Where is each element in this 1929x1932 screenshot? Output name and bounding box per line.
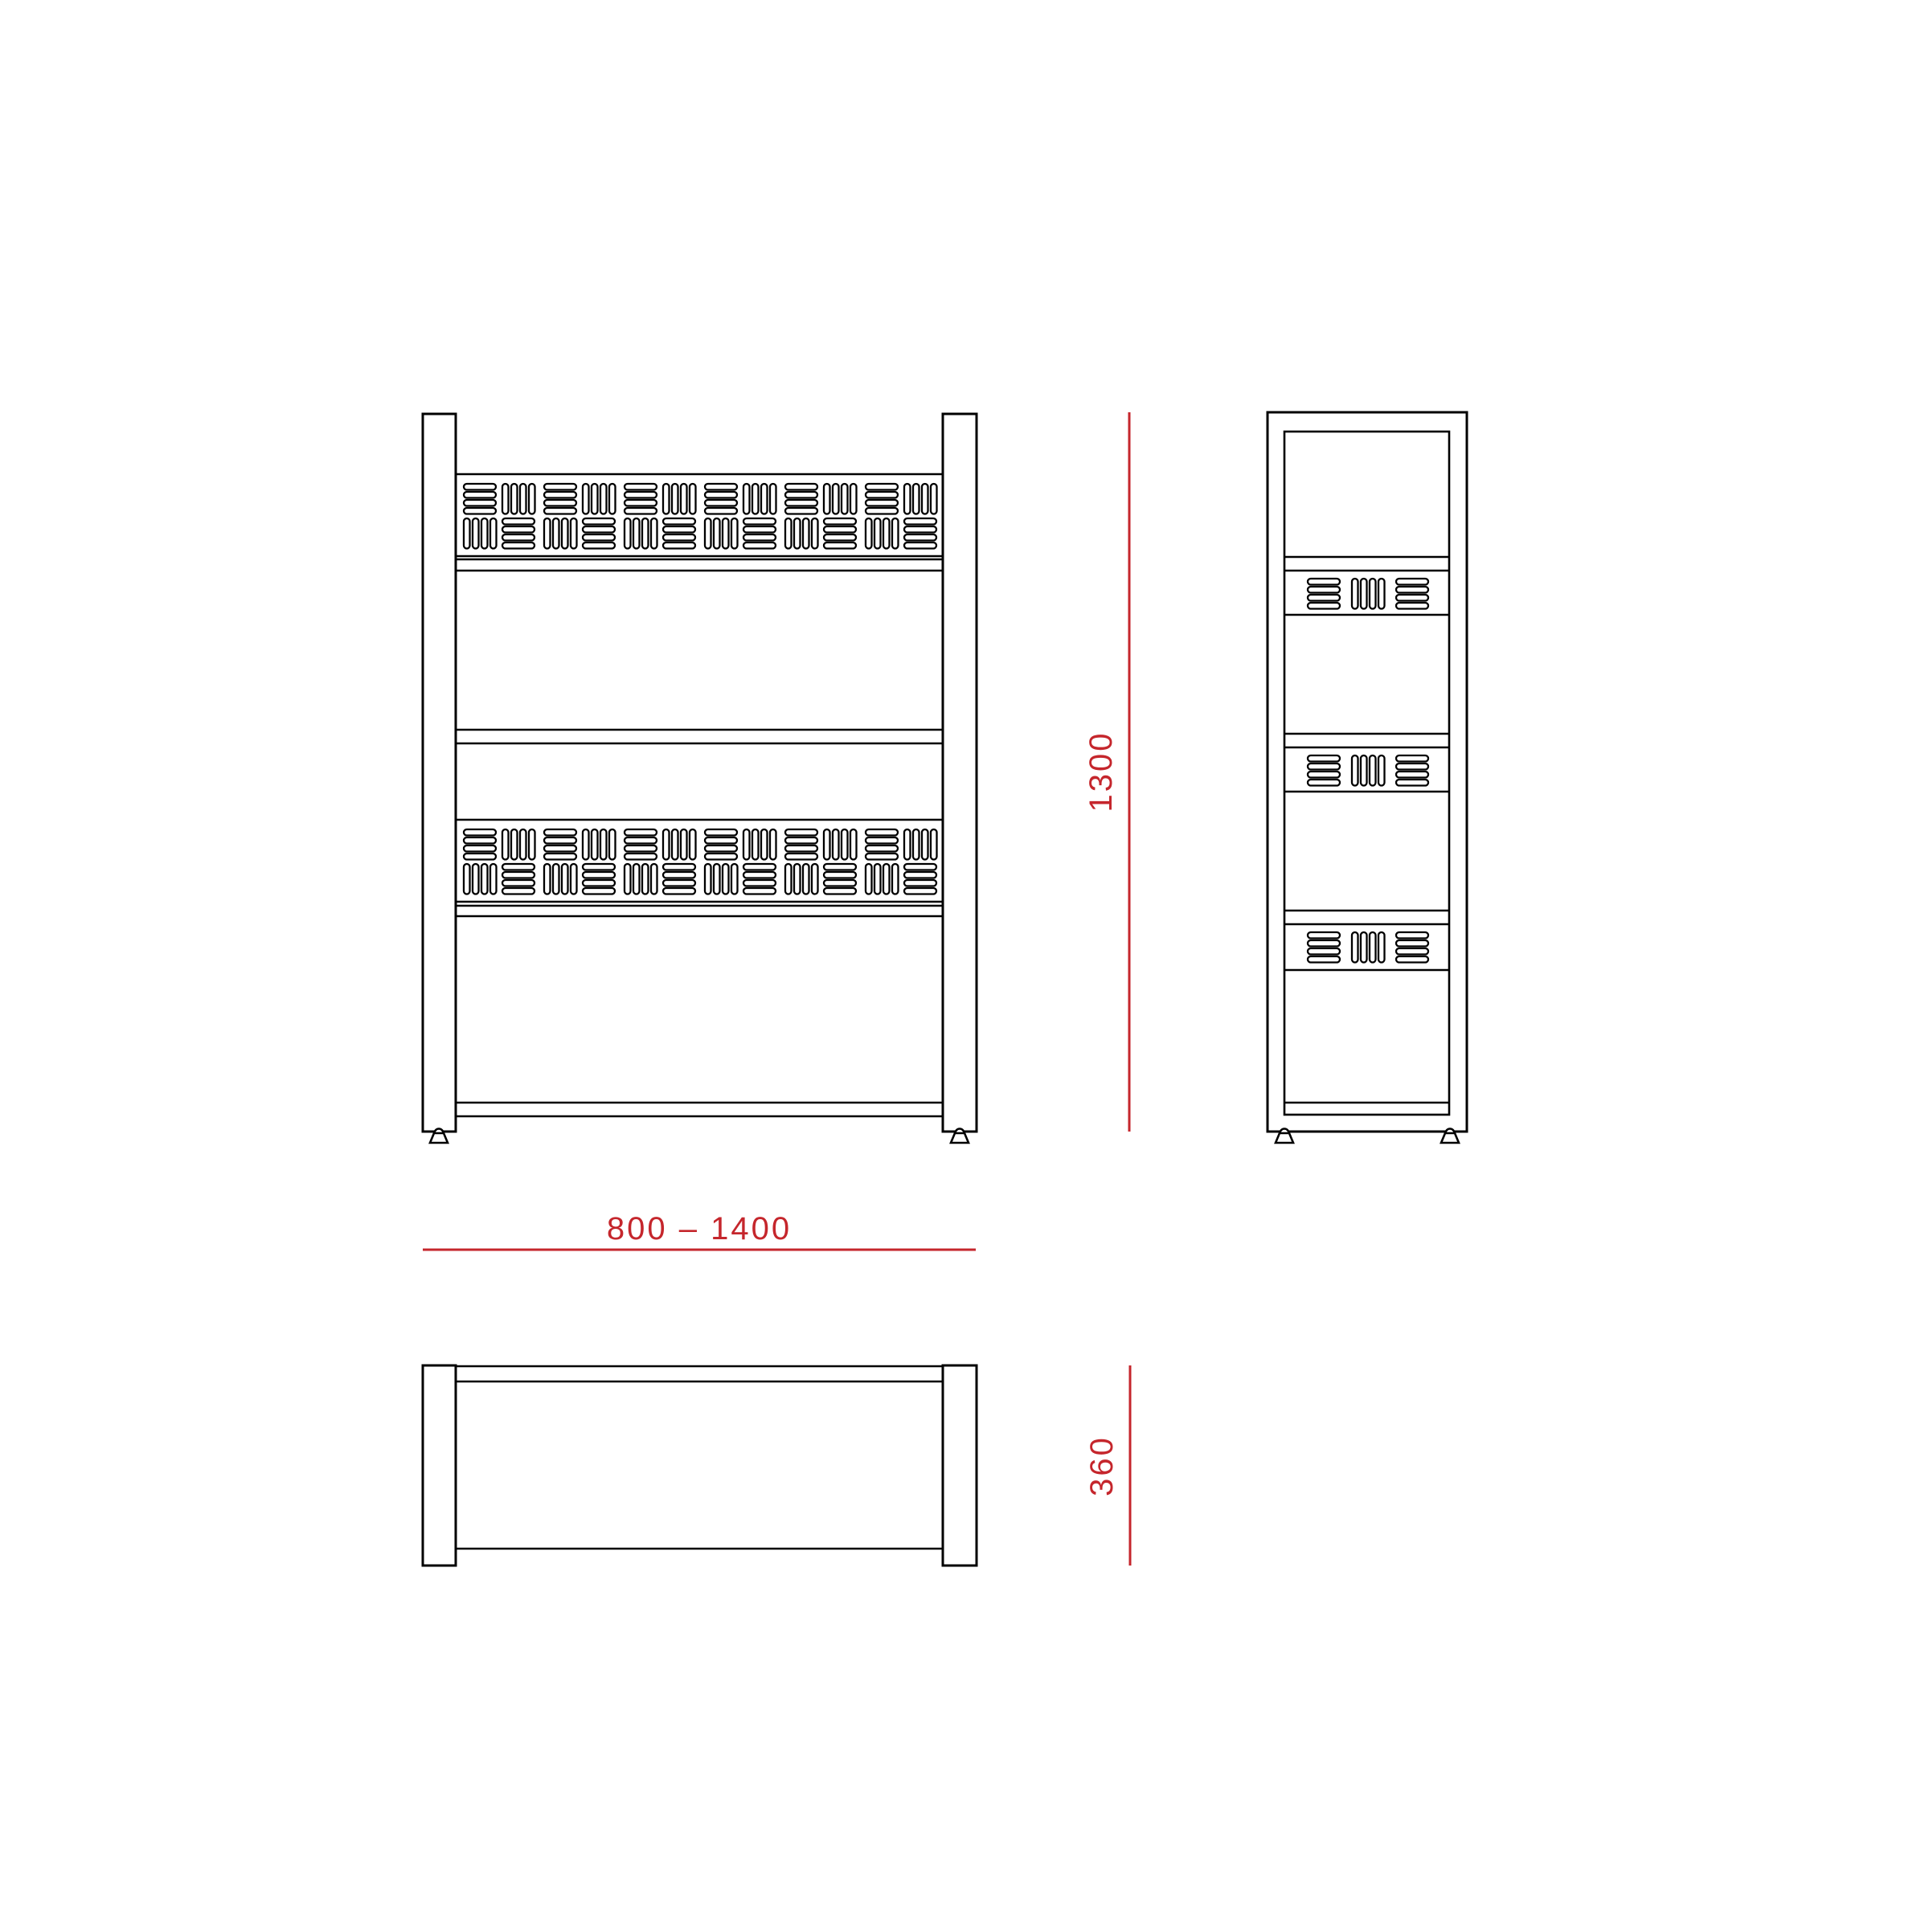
front-right-post — [943, 414, 977, 1132]
vent-slot — [892, 864, 899, 894]
side-view — [1268, 412, 1467, 1143]
vent-slot — [464, 853, 496, 860]
vent-slot — [464, 492, 496, 498]
vent-slot — [464, 829, 496, 836]
vent-slot — [1308, 772, 1340, 778]
vent-slot — [1308, 940, 1340, 947]
vent-slot — [681, 829, 687, 860]
vent-tile-vertical-icon — [502, 829, 535, 860]
vent-slot — [1396, 932, 1428, 939]
vent-slot — [511, 829, 518, 860]
vent-tile-vertical-icon — [502, 484, 535, 514]
vent-slot — [714, 518, 720, 549]
vent-slot — [544, 864, 551, 894]
vent-slot — [544, 518, 551, 549]
foot-glide-base — [430, 1133, 448, 1143]
vent-slot — [663, 534, 695, 541]
vent-slot — [883, 864, 890, 894]
vent-slot — [743, 542, 776, 549]
vent-slot — [464, 500, 496, 506]
vent-slot — [705, 500, 737, 506]
vent-slot — [785, 508, 817, 514]
vent-slot — [812, 864, 818, 894]
vent-slot — [743, 864, 776, 870]
vent-slot — [1396, 755, 1428, 762]
vent-slot — [583, 518, 615, 525]
vent-slot — [904, 829, 911, 860]
vent-slot — [529, 829, 535, 860]
vent-slot — [464, 837, 496, 844]
vent-slot — [904, 484, 911, 514]
vent-slot — [481, 864, 488, 894]
vent-slot — [785, 837, 817, 844]
vent-slot — [464, 518, 470, 549]
vent-slot — [824, 880, 856, 886]
vent-slot — [609, 829, 616, 860]
vent-tile-horizontal-icon — [785, 829, 817, 860]
vent-slot — [481, 518, 488, 549]
vent-slot — [785, 518, 792, 549]
vent-tile-vertical-icon — [866, 864, 899, 894]
vent-slot — [502, 829, 509, 860]
vent-slot — [633, 518, 640, 549]
vent-slot — [866, 853, 898, 860]
vent-slot — [1308, 956, 1340, 963]
vent-slot — [705, 518, 711, 549]
vent-tile-horizontal-icon — [743, 518, 776, 549]
vent-slot — [874, 864, 881, 894]
vent-tile-vertical-icon — [904, 829, 937, 860]
vent-slot — [583, 872, 615, 878]
vent-slot — [663, 888, 695, 894]
vent-tile-horizontal-icon — [824, 864, 856, 894]
vent-slot — [502, 518, 534, 525]
vent-slot — [690, 829, 696, 860]
vent-tile-horizontal-icon — [625, 829, 657, 860]
vent-slot — [812, 518, 818, 549]
vent-slot — [1396, 763, 1428, 770]
front-left-post — [423, 414, 456, 1132]
vent-slot — [625, 508, 657, 514]
vent-slot — [625, 518, 631, 549]
vent-slot — [752, 829, 759, 860]
vent-slot — [705, 845, 737, 852]
vent-slot — [824, 829, 830, 860]
vent-slot — [743, 872, 776, 878]
vent-slot — [502, 872, 534, 878]
vent-slot — [562, 518, 568, 549]
vent-slot — [785, 500, 817, 506]
vent-slot — [663, 829, 670, 860]
vent-slot — [583, 829, 589, 860]
vent-slot — [529, 484, 535, 514]
vent-slot — [922, 829, 928, 860]
vent-slot — [1378, 579, 1385, 609]
vent-slot — [544, 508, 576, 514]
vent-tile-vertical-icon — [743, 484, 776, 514]
vent-slot — [464, 508, 496, 514]
vent-tile-vertical-icon — [583, 484, 616, 514]
vent-slot — [1308, 763, 1340, 770]
vent-slot — [922, 484, 928, 514]
vent-slot — [490, 864, 497, 894]
vent-slot — [583, 864, 615, 870]
vent-slot — [663, 864, 695, 870]
vent-slot — [913, 829, 919, 860]
vent-slot — [705, 492, 737, 498]
vent-slot — [464, 845, 496, 852]
vent-slot — [904, 542, 936, 549]
front-feet — [430, 1129, 969, 1144]
vent-tile-horizontal-icon — [866, 484, 898, 514]
vent-slot — [511, 484, 518, 514]
technical-drawing-sheet: 1300 800 – 1400 360 — [0, 0, 1929, 1928]
vent-slot — [803, 864, 809, 894]
vent-slot — [1308, 603, 1340, 609]
vent-slot — [770, 829, 776, 860]
vent-slot — [609, 484, 616, 514]
vent-slot — [1396, 956, 1428, 963]
vent-tile-horizontal-icon — [583, 864, 615, 894]
vent-tile-vertical-icon — [824, 829, 857, 860]
vent-slot — [502, 534, 534, 541]
foot-glide-base — [1276, 1133, 1293, 1143]
vent-slot — [1378, 755, 1385, 786]
vent-slot — [794, 864, 801, 894]
vent-slot — [904, 864, 936, 870]
vent-slot — [520, 484, 526, 514]
furniture-dimension-drawing: 1300 800 – 1400 360 — [0, 0, 1929, 1928]
vent-slot — [833, 484, 839, 514]
vent-slot — [672, 829, 678, 860]
vent-slot — [625, 845, 657, 852]
vent-slot — [544, 853, 576, 860]
vent-slot — [866, 508, 898, 514]
vent-tile-vertical-icon — [663, 829, 696, 860]
vent-slot — [583, 534, 615, 541]
vent-tile-horizontal-icon — [904, 518, 936, 549]
vent-slot — [785, 864, 792, 894]
vent-slot — [571, 518, 577, 549]
vent-slot — [651, 518, 657, 549]
vent-tile-horizontal-icon — [705, 484, 737, 514]
vent-slot — [1396, 587, 1428, 593]
vent-slot — [705, 853, 737, 860]
vent-slot — [562, 864, 568, 894]
vent-slot — [1378, 932, 1385, 963]
vent-tile-horizontal-icon — [663, 864, 695, 894]
vent-slot — [761, 829, 768, 860]
vent-tile-vertical-icon — [544, 518, 577, 549]
vent-slot — [850, 484, 857, 514]
vent-slot — [625, 853, 657, 860]
front-view — [423, 414, 977, 1143]
vent-slot — [731, 864, 738, 894]
vent-slot — [663, 518, 695, 525]
vent-tile-vertical-icon — [743, 829, 776, 860]
vent-slot — [502, 880, 534, 886]
vent-tile-horizontal-icon — [464, 484, 496, 514]
width-dimension-label: 800 – 1400 — [607, 1211, 792, 1246]
vent-slot — [743, 526, 776, 533]
vent-slot — [502, 888, 534, 894]
vent-slot — [1396, 595, 1428, 601]
vent-tile-vertical-icon — [705, 518, 738, 549]
vent-slot — [824, 542, 856, 549]
vent-slot — [600, 829, 607, 860]
vent-tile-horizontal-icon — [544, 829, 576, 860]
vent-slot — [824, 484, 830, 514]
top-right-post — [943, 1365, 977, 1566]
vent-slot — [464, 484, 496, 490]
vent-slot — [904, 526, 936, 533]
vent-tile-vertical-icon — [464, 518, 497, 549]
vent-slot — [785, 853, 817, 860]
vent-slot — [1361, 755, 1367, 786]
vent-slot — [473, 864, 479, 894]
vent-slot — [931, 484, 937, 514]
top-left-post — [423, 1365, 456, 1566]
vent-slot — [672, 484, 678, 514]
vent-slot — [743, 518, 776, 525]
vent-slot — [1352, 755, 1358, 786]
foot-glide-base — [1441, 1133, 1459, 1143]
vent-slot — [592, 484, 598, 514]
vent-slot — [913, 484, 919, 514]
front-vent-grille-top — [464, 484, 937, 549]
vent-slot — [866, 829, 898, 836]
vent-slot — [705, 837, 737, 844]
vent-slot — [1308, 595, 1340, 601]
vent-slot — [743, 829, 750, 860]
vent-tile-horizontal-icon — [705, 829, 737, 860]
depth-dimension-label: 360 — [1084, 1435, 1120, 1496]
vent-slot — [571, 864, 577, 894]
vent-slot — [625, 484, 657, 490]
vent-slot — [794, 518, 801, 549]
vent-slot — [1308, 780, 1340, 786]
vent-slot — [1396, 780, 1428, 786]
vent-slot — [743, 888, 776, 894]
vent-slot — [592, 829, 598, 860]
vent-slot — [1352, 932, 1358, 963]
vent-tile-vertical-icon — [583, 829, 616, 860]
vent-slot — [842, 829, 848, 860]
vent-slot — [663, 526, 695, 533]
vent-slot — [690, 484, 696, 514]
vent-slot — [1361, 932, 1367, 963]
vent-slot — [842, 484, 848, 514]
dimension-annotations: 1300 800 – 1400 360 — [423, 412, 1130, 1566]
vent-slot — [705, 829, 737, 836]
vent-slot — [866, 484, 898, 490]
vent-slot — [544, 845, 576, 852]
vent-tile-horizontal-icon — [785, 484, 817, 514]
vent-slot — [583, 484, 589, 514]
vent-slot — [904, 880, 936, 886]
vent-slot — [583, 542, 615, 549]
vent-slot — [633, 864, 640, 894]
vent-tile-horizontal-icon — [743, 864, 776, 894]
vent-tile-horizontal-icon — [824, 518, 856, 549]
vent-slot — [770, 484, 776, 514]
top-panel-lines — [456, 1366, 943, 1549]
vent-slot — [931, 829, 937, 860]
vent-slot — [731, 518, 738, 549]
vent-slot — [600, 484, 607, 514]
vent-slot — [473, 518, 479, 549]
vent-slot — [1308, 587, 1340, 593]
vent-tile-vertical-icon — [785, 518, 818, 549]
vent-slot — [663, 872, 695, 878]
height-dimension-label: 1300 — [1083, 731, 1119, 813]
vent-slot — [1308, 932, 1340, 939]
vent-slot — [583, 888, 615, 894]
vent-slot — [824, 872, 856, 878]
vent-tile-vertical-icon — [866, 518, 899, 549]
vent-slot — [850, 829, 857, 860]
vent-tile-horizontal-icon — [502, 864, 534, 894]
vent-slot — [1370, 579, 1376, 609]
vent-tile-vertical-icon — [663, 484, 696, 514]
vent-slot — [833, 829, 839, 860]
vent-slot — [866, 518, 872, 549]
vent-tile-vertical-icon — [824, 484, 857, 514]
vent-slot — [705, 508, 737, 514]
vent-tile-horizontal-icon — [544, 484, 576, 514]
vent-tile-horizontal-icon — [502, 518, 534, 549]
vent-slot — [663, 484, 670, 514]
vent-slot — [642, 518, 649, 549]
vent-tile-vertical-icon — [625, 864, 657, 894]
vent-slot — [723, 518, 729, 549]
vent-tile-horizontal-icon — [583, 518, 615, 549]
front-panel-lines — [456, 474, 943, 1116]
vent-slot — [583, 880, 615, 886]
vent-slot — [866, 845, 898, 852]
vent-slot — [502, 864, 534, 870]
vent-slot — [544, 500, 576, 506]
vent-slot — [1370, 755, 1376, 786]
vent-slot — [544, 837, 576, 844]
vent-slot — [544, 484, 576, 490]
vent-slot — [803, 518, 809, 549]
vent-slot — [824, 518, 856, 525]
vent-slot — [714, 864, 720, 894]
vent-slot — [904, 888, 936, 894]
vent-slot — [625, 837, 657, 844]
vent-slot — [874, 518, 881, 549]
vent-slot — [866, 837, 898, 844]
vent-tile-horizontal-icon — [904, 864, 936, 894]
vent-slot — [583, 526, 615, 533]
vent-slot — [705, 484, 737, 490]
vent-slot — [1361, 579, 1367, 609]
vent-slot — [663, 880, 695, 886]
vent-slot — [904, 518, 936, 525]
vent-slot — [866, 500, 898, 506]
vent-slot — [785, 845, 817, 852]
foot-glide-base — [951, 1133, 969, 1143]
vent-slot — [743, 880, 776, 886]
vent-slot — [866, 864, 872, 894]
vent-slot — [520, 829, 526, 860]
vent-slot — [1396, 603, 1428, 609]
vent-slot — [866, 492, 898, 498]
vent-slot — [544, 492, 576, 498]
vent-slot — [1370, 932, 1376, 963]
vent-slot — [904, 534, 936, 541]
vent-tile-vertical-icon — [785, 864, 818, 894]
vent-slot — [681, 484, 687, 514]
vent-slot — [642, 864, 649, 894]
vent-slot — [785, 492, 817, 498]
vent-tile-vertical-icon — [544, 864, 577, 894]
front-vent-grille-middle — [464, 829, 937, 894]
vent-slot — [723, 864, 729, 894]
vent-slot — [1352, 579, 1358, 609]
vent-slot — [1308, 948, 1340, 955]
vent-slot — [625, 864, 631, 894]
vent-slot — [824, 864, 856, 870]
vent-slot — [1308, 579, 1340, 585]
vent-slot — [743, 484, 750, 514]
vent-tile-horizontal-icon — [625, 484, 657, 514]
vent-slot — [490, 518, 497, 549]
vent-slot — [752, 484, 759, 514]
vent-slot — [904, 872, 936, 878]
vent-tile-vertical-icon — [705, 864, 738, 894]
vent-slot — [625, 492, 657, 498]
vent-slot — [705, 864, 711, 894]
vent-slot — [553, 518, 559, 549]
vent-tile-horizontal-icon — [464, 829, 496, 860]
vent-slot — [743, 534, 776, 541]
vent-slot — [625, 500, 657, 506]
vent-slot — [785, 829, 817, 836]
vent-slot — [1396, 948, 1428, 955]
vent-slot — [1396, 579, 1428, 585]
vent-slot — [785, 484, 817, 490]
vent-slot — [1396, 772, 1428, 778]
vent-tile-vertical-icon — [904, 484, 937, 514]
vent-tile-vertical-icon — [464, 864, 497, 894]
vent-slot — [464, 864, 470, 894]
vent-slot — [824, 534, 856, 541]
vent-slot — [761, 484, 768, 514]
vent-slot — [883, 518, 890, 549]
vent-slot — [651, 864, 657, 894]
vent-slot — [544, 829, 576, 836]
vent-slot — [502, 542, 534, 549]
vent-slot — [502, 484, 509, 514]
vent-tile-horizontal-icon — [866, 829, 898, 860]
vent-slot — [553, 864, 559, 894]
vent-tile-horizontal-icon — [663, 518, 695, 549]
vent-slot — [1396, 940, 1428, 947]
vent-slot — [824, 888, 856, 894]
vent-slot — [502, 526, 534, 533]
vent-slot — [625, 829, 657, 836]
vent-slot — [1308, 755, 1340, 762]
vent-slot — [824, 526, 856, 533]
vent-slot — [892, 518, 899, 549]
top-view — [423, 1365, 977, 1566]
vent-tile-vertical-icon — [625, 518, 657, 549]
vent-slot — [663, 542, 695, 549]
